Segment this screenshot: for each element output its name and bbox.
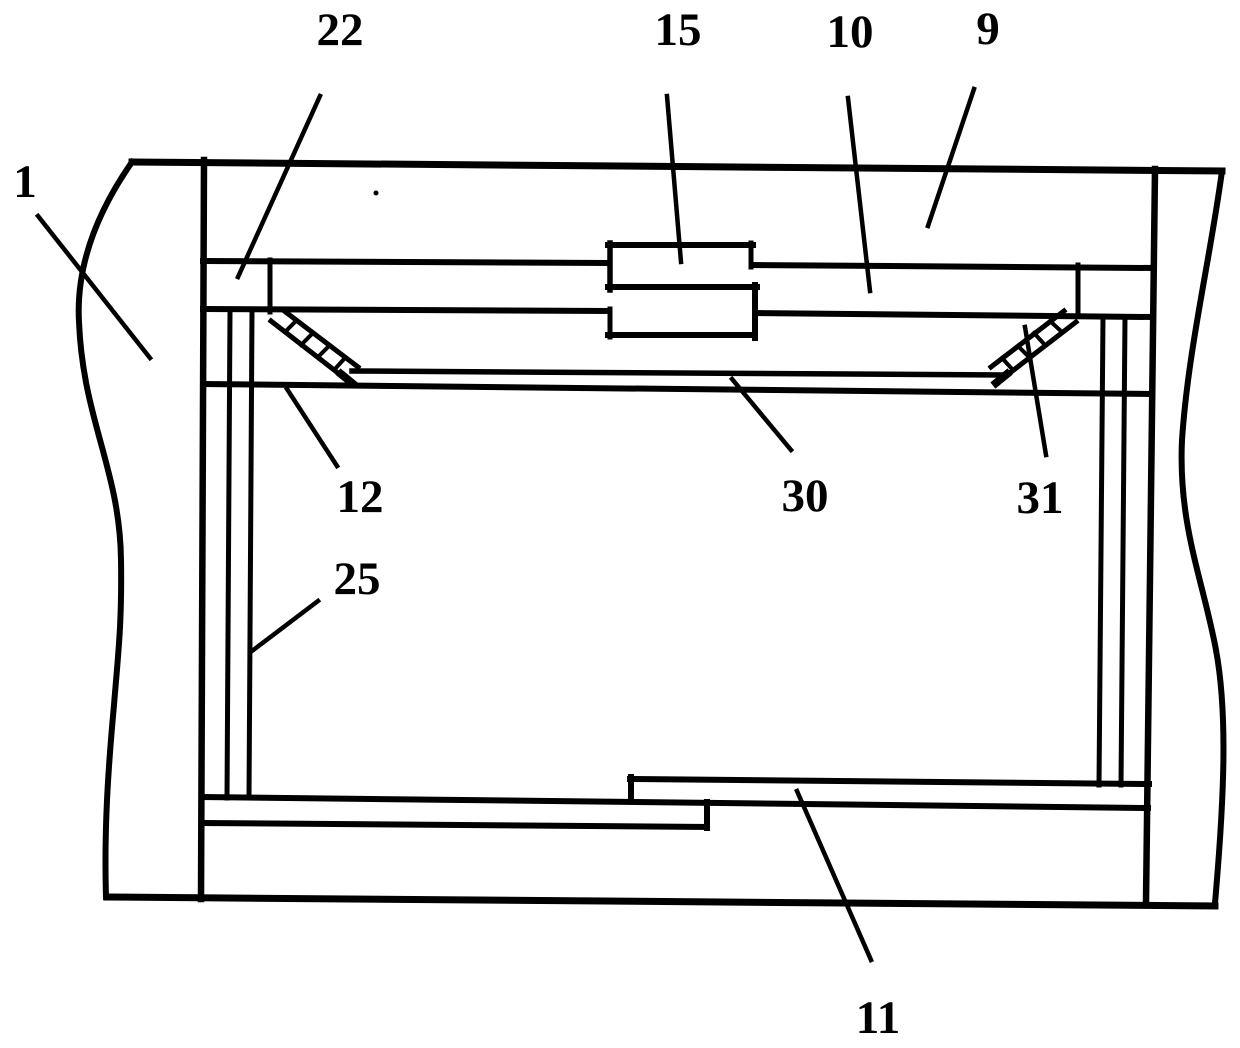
left-post-outer <box>227 311 230 798</box>
frame-bottom-edge <box>107 897 1215 906</box>
part-label-9: 9 <box>976 3 1000 55</box>
right-break-line <box>1182 171 1224 903</box>
right-brace-rung-1 <box>1050 321 1062 332</box>
cover-bottom-rail-right <box>755 313 1150 317</box>
part-label-15: 15 <box>655 4 702 56</box>
part-label-22: 22 <box>317 4 364 56</box>
left-post-inner <box>249 311 252 798</box>
stray-dot <box>374 191 379 196</box>
leader-line-25 <box>252 601 318 651</box>
part-label-12: 12 <box>337 471 384 523</box>
left-brace-rung-2 <box>301 333 313 345</box>
left-brace-rung-1 <box>285 321 296 332</box>
left-wall <box>201 160 204 899</box>
leader-line-22 <box>238 96 320 277</box>
left-brace-rung-4 <box>334 358 345 370</box>
right-brace-rung-2 <box>1034 333 1045 345</box>
floor-left-bottom-edge <box>203 823 707 827</box>
leader-line-11 <box>797 791 871 960</box>
leader-line-9 <box>928 89 974 226</box>
part-label-1: 1 <box>13 156 37 208</box>
part-label-31: 31 <box>1017 472 1064 524</box>
left-break-line <box>79 162 132 897</box>
shelf-support-line <box>203 384 1150 394</box>
right-brace-rung-4 <box>1002 358 1013 370</box>
shelf-top-edge <box>352 371 1002 375</box>
right-wall <box>1146 169 1155 902</box>
leader-line-10 <box>848 98 870 291</box>
part-label-11: 11 <box>856 992 900 1044</box>
cover-top-rail-left <box>203 261 608 263</box>
left-brace-foot <box>341 374 352 383</box>
patent-figure-page: 122151091225303111 <box>0 0 1240 1048</box>
cover-bottom-rail-left <box>203 309 608 311</box>
floor-right-top-edge <box>630 779 1149 784</box>
frame-top-edge <box>132 162 1222 171</box>
cover-top-rail-right <box>752 265 1152 268</box>
right-post-inner <box>1099 317 1103 785</box>
part-label-25: 25 <box>334 553 381 605</box>
right-post-outer <box>1121 317 1125 785</box>
part-label-30: 30 <box>782 470 829 522</box>
leader-line-12 <box>287 389 337 466</box>
leader-line-15 <box>667 96 681 262</box>
patent-figure: 122151091225303111 <box>0 0 1240 1048</box>
part-label-10: 10 <box>827 6 874 58</box>
floor-middle-edge <box>203 797 1148 808</box>
left-brace-rung-3 <box>318 346 329 357</box>
